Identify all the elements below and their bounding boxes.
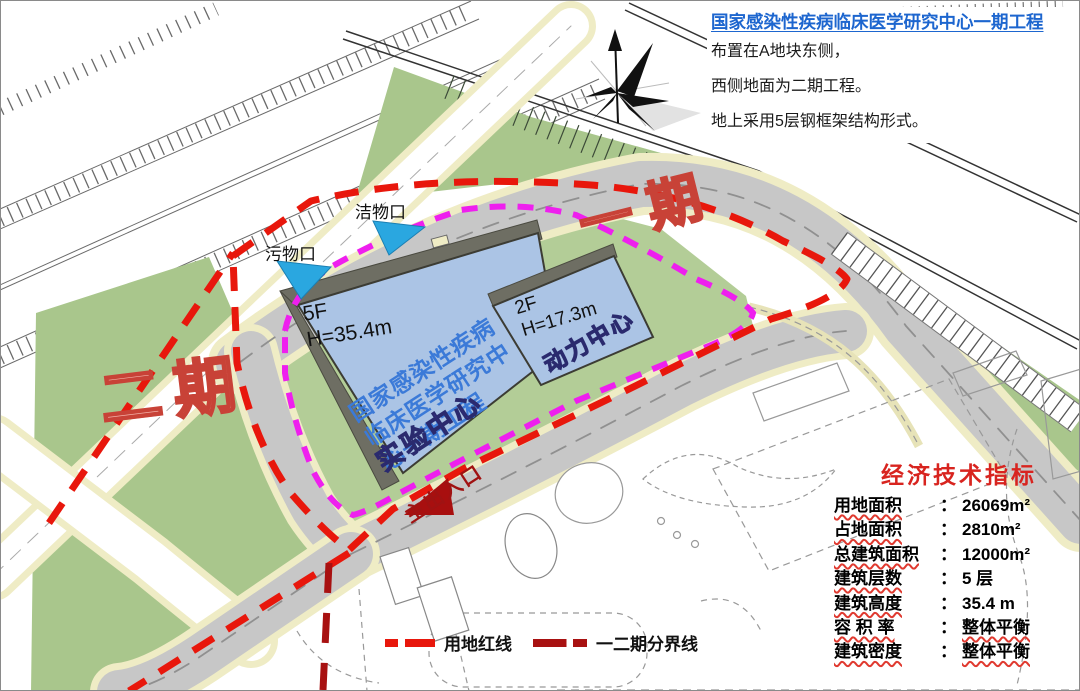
header-note-3: 地上采用5层钢框架结构形式。 [711, 104, 1080, 139]
header-note-2: 西侧地面为二期工程。 [711, 69, 1080, 104]
project-title: 国家感染性疾病临床医学研究中心一期工程 [711, 9, 1080, 34]
header-note-1: 布置在A地块东侧， [711, 34, 1080, 69]
legend-item-red-line: 用地红线 [385, 630, 512, 655]
legend-label: 一二期分界线 [596, 630, 698, 655]
indicators-panel: 经济技术指标 用地面积 ： 26069m² 占地面积 ： 2810m² 总建筑面… [834, 456, 1080, 665]
legend-item-phase-divider: 一二期分界线 [533, 630, 698, 655]
red-dash-swatch [385, 639, 435, 647]
indicator-row: 建筑层数 ： 5 层 [834, 567, 1080, 591]
header-block: 国家感染性疾病临床医学研究中心一期工程 布置在A地块东侧， 西侧地面为二期工程。… [707, 7, 1080, 143]
clean-entrance-label: 洁物口 [355, 198, 406, 223]
indicator-row: 总建筑面积 ： 12000m² [834, 543, 1080, 567]
indicator-row: 建筑高度 ： 35.4 m [834, 592, 1080, 616]
indicator-row: 容 积 率 ： 整体平衡 [834, 616, 1080, 640]
dirty-entrance-label: 污物口 [265, 240, 316, 265]
indicator-row: 占地面积 ： 2810m² [834, 518, 1080, 542]
indicator-row: 用地面积 ： 26069m² [834, 494, 1080, 518]
indicator-row: 建筑密度 ： 整体平衡 [834, 640, 1080, 664]
indicators-title: 经济技术指标 [834, 456, 1080, 490]
dark-red-dash-swatch [533, 639, 587, 647]
site-plan: 国家感染性疾病临床医学研究中心一期工程 布置在A地块东侧， 西侧地面为二期工程。… [0, 0, 1080, 691]
legend-label: 用地红线 [444, 630, 512, 655]
phase2-label: 二期 [94, 332, 252, 439]
